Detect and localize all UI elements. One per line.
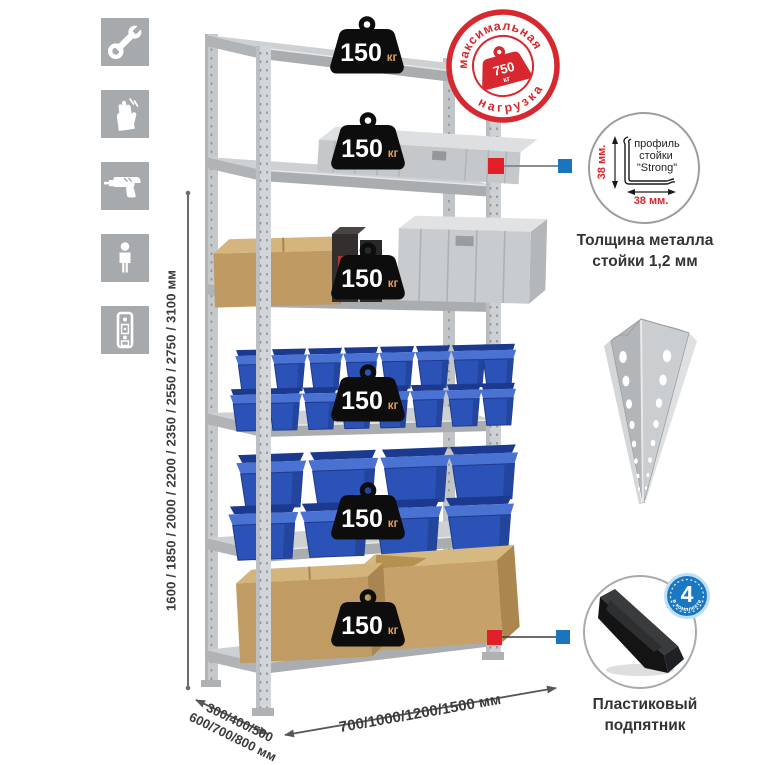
load-unit: кг — [388, 625, 399, 637]
foot-plate — [201, 680, 221, 687]
product-infographic: 150 кг 150 кг 150 кг 150 кг 150 кг — [0, 0, 765, 765]
profile-dim-bottom: 38 мм. — [634, 195, 669, 207]
upright-back-left — [201, 34, 221, 687]
feature-icon-gloves — [101, 90, 149, 138]
profile-dim-left: 38 мм. — [596, 145, 608, 180]
profile-label: "Strong" — [637, 162, 677, 174]
storage-bin — [448, 444, 520, 501]
foot-plate — [252, 708, 274, 716]
foot-plate — [482, 652, 504, 660]
caption-line-1: Пластиковый — [559, 695, 731, 716]
storage-bin — [307, 348, 344, 391]
caption-line-1: Толщина металла — [559, 231, 731, 252]
quantity-badge: 4 в комплекте — [666, 575, 709, 618]
metal-thickness-caption: Толщина металла стойки 1,2 мм — [559, 231, 731, 273]
load-value: 150 — [341, 505, 383, 533]
caption-line-2: подпятник — [559, 716, 731, 737]
load-unit: кг — [388, 518, 399, 530]
storage-bin — [480, 344, 517, 387]
callout-bottom — [487, 630, 570, 645]
caption-line-2: стойки 1,2 мм — [559, 252, 731, 273]
case-latch — [432, 151, 447, 161]
gloves-icon — [101, 90, 149, 138]
load-value: 150 — [341, 612, 383, 640]
quantity-value: 4 — [681, 581, 694, 607]
load-value: 150 — [341, 265, 383, 293]
height-dimensions-label: 1600 / 1850 / 2000 / 2200 / 2350 / 2550 … — [163, 191, 180, 691]
blue-marker — [556, 630, 570, 644]
weight-ring — [361, 19, 373, 31]
corner-profile-image — [604, 319, 697, 504]
feature-icon-person — [101, 234, 149, 282]
load-value: 150 — [341, 135, 383, 163]
storage-bin — [271, 348, 308, 391]
plastic-foot-circle: 4 в комплекте — [584, 575, 709, 689]
drill-icon — [101, 162, 149, 210]
trunk-latch — [455, 236, 473, 246]
profile-label: профиль — [634, 138, 680, 150]
storage-bin — [415, 345, 452, 388]
aluminum-trunk — [397, 215, 547, 304]
storage-bin — [380, 447, 452, 504]
feature-icon-drill — [101, 162, 149, 210]
callout-top — [488, 158, 572, 174]
weight-ring — [362, 115, 374, 127]
height-dimension-line — [186, 191, 191, 691]
storage-bin — [444, 496, 516, 553]
feature-icon-upright — [101, 306, 149, 354]
profile-detail-circle: 38 мм. 38 мм. профиль стойки "Strong" — [589, 113, 699, 223]
load-badge-2: 150 кг — [331, 115, 405, 170]
load-unit: кг — [388, 148, 399, 160]
storage-bin — [236, 452, 308, 509]
load-unit: кг — [388, 278, 399, 290]
red-marker — [487, 630, 502, 645]
max-load-stamp: максимальная нагрузка 750 кг — [437, 0, 569, 132]
red-marker — [488, 158, 504, 174]
feature-icon-assembly — [101, 18, 149, 66]
plastic-foot-caption: Пластиковый подпятник — [559, 695, 731, 737]
person-icon — [101, 234, 149, 282]
rack-upright-icon — [101, 306, 149, 354]
wrench-icon — [101, 18, 149, 66]
load-value: 150 — [340, 39, 382, 67]
load-value: 150 — [341, 387, 383, 415]
load-unit: кг — [387, 52, 398, 64]
load-unit: кг — [388, 400, 399, 412]
load-badge-1: 150 кг — [330, 19, 404, 74]
profile-label: стойки — [639, 150, 673, 162]
blue-marker — [558, 159, 572, 173]
